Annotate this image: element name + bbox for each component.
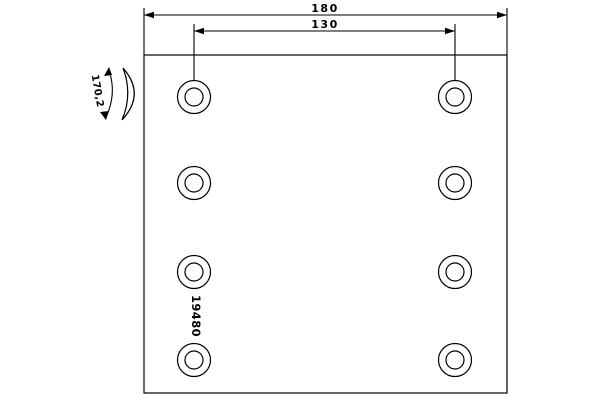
dimension-hole-spacing: 130 [194, 18, 455, 81]
arrow-right-icon [445, 28, 455, 34]
mounting-hole [178, 167, 211, 200]
mounting-hole [178, 256, 211, 289]
arc-dimension-label: 170,2 [89, 74, 106, 109]
arrow-right-icon [497, 12, 507, 18]
mounting-holes [178, 81, 472, 377]
mounting-hole [178, 344, 211, 377]
mounting-hole [439, 167, 472, 200]
lining-curvature-symbol: 170,2 [89, 67, 135, 120]
arc-dimension-line [106, 70, 112, 117]
arc-arrow-top-icon [104, 67, 112, 76]
brake-lining-drawing: 180 130 [0, 0, 600, 400]
arc-arrow-bottom-icon [100, 111, 109, 120]
part-number-label: 19480 [189, 295, 203, 337]
technical-drawing-canvas: 180 130 [0, 0, 600, 400]
mounting-hole [439, 81, 472, 114]
mounting-hole [439, 256, 472, 289]
mounting-hole [178, 81, 211, 114]
overall-width-label: 180 [311, 2, 338, 15]
lining-cross-section [122, 68, 134, 120]
arrow-left-icon [144, 12, 154, 18]
mounting-hole [439, 344, 472, 377]
arrow-left-icon [194, 28, 204, 34]
hole-spacing-label: 130 [311, 18, 338, 31]
